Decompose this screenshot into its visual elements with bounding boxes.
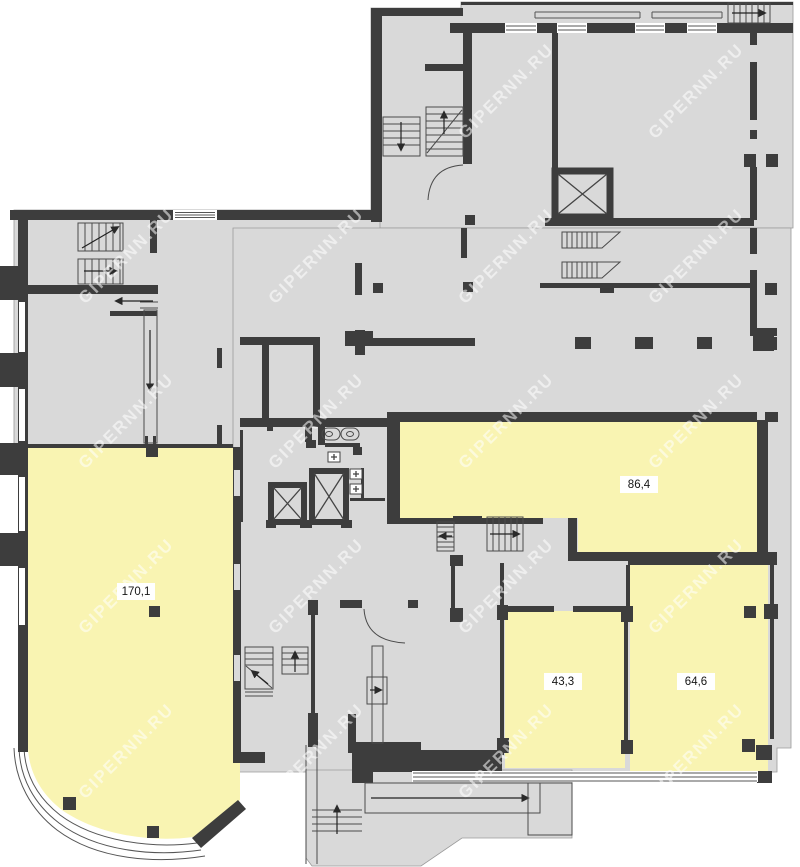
fixture-plus-icon bbox=[328, 452, 340, 462]
entrance-porch-floor bbox=[306, 770, 572, 866]
room-area-label-170-1: 170,1 bbox=[117, 583, 155, 600]
floor-plan-page: GIPERNN.RUGIPERNN.RUGIPERNN.RUGIPERNN.RU… bbox=[0, 0, 800, 867]
room-area-value: 86,4 bbox=[628, 479, 651, 491]
room-area-label-86-4: 86,4 bbox=[620, 476, 658, 493]
room-area-value: 43,3 bbox=[552, 676, 574, 688]
fixture-plus-icon bbox=[350, 484, 362, 494]
room-area-value: 64,6 bbox=[685, 676, 707, 688]
room-area-value: 170,1 bbox=[122, 586, 151, 598]
room-170-1-shape bbox=[28, 447, 240, 839]
elevator-shaft-left bbox=[271, 485, 304, 522]
floor-plan-image: GIPERNN.RUGIPERNN.RUGIPERNN.RUGIPERNN.RU… bbox=[0, 0, 800, 867]
watermark-text: GIPERNN.RU bbox=[265, 40, 368, 143]
watermark-text: GIPERNN.RU bbox=[75, 40, 178, 143]
elevator-shaft-right bbox=[312, 471, 346, 522]
elevator-shaft-top bbox=[555, 171, 610, 217]
room-area-label-64-6: 64,6 bbox=[677, 673, 715, 690]
fixture-plus-icon bbox=[350, 469, 362, 479]
room-area-label-43-3: 43,3 bbox=[544, 673, 582, 690]
